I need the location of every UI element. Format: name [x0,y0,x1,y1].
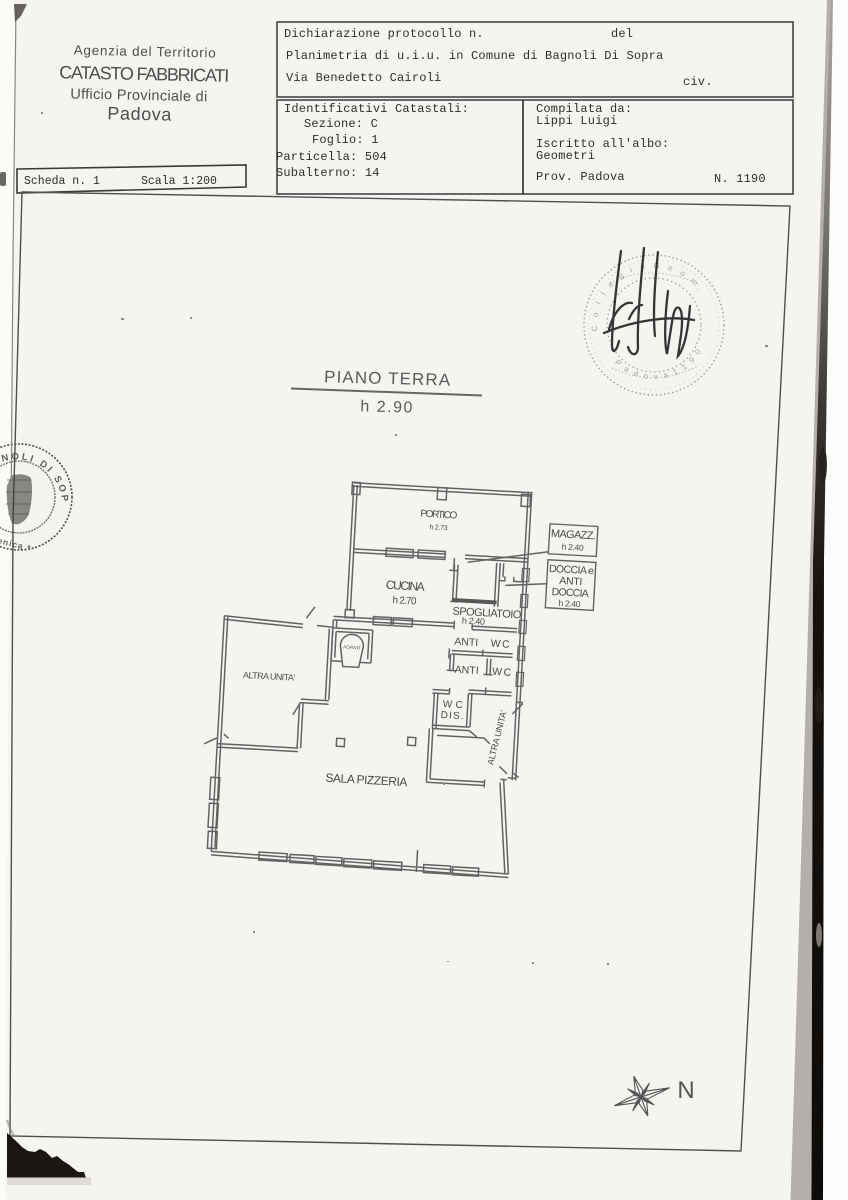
svg-text:PORTICO: PORTICO [420,509,459,522]
svg-text:N: N [677,1077,694,1104]
svg-text:MAGAZZ.: MAGAZZ. [551,528,597,542]
svg-text:Scala 1:200: Scala 1:200 [141,175,217,188]
svg-text:ANTI: ANTI [454,636,479,649]
svg-text:Prov. Padova: Prov. Padova [536,170,625,184]
svg-text:Agenzia del Territorio: Agenzia del Territorio [74,43,216,61]
svg-text:Particella: 504: Particella: 504 [276,150,387,164]
svg-text:CUCINA: CUCINA [385,578,425,594]
svg-text:N. 1190: N. 1190 [714,172,766,186]
svg-text:Planimetria di u.i.u. in Comun: Planimetria di u.i.u. in Comune di Bagno… [286,49,663,63]
svg-text:h 2.73: h 2.73 [429,524,447,532]
svg-text:Lippi Luigi: Lippi Luigi [536,114,617,128]
svg-text:h 2.40: h 2.40 [558,598,581,609]
svg-text:h 2.40: h 2.40 [462,616,486,627]
svg-text:FORNO: FORNO [343,644,361,650]
svg-text:ANTI: ANTI [454,664,479,677]
svg-text:Padova: Padova [107,103,172,124]
svg-text:Sezione: C: Sezione: C [304,117,378,131]
svg-text:Dichiarazione protocollo n.: Dichiarazione protocollo n. [284,27,484,41]
svg-text:Foglio: 1: Foglio: 1 [312,133,379,147]
svg-text:Identificativi Catastali:: Identificativi Catastali: [284,102,469,116]
svg-text:PIANO TERRA: PIANO TERRA [324,367,452,389]
svg-text:h 2.40: h 2.40 [561,542,584,553]
svg-text:h 2.90: h 2.90 [360,398,413,416]
svg-text:civ.: civ. [683,75,713,89]
svg-text:Via Benedetto Cairoli: Via Benedetto Cairoli [286,71,441,85]
svg-text:del: del [611,27,633,41]
svg-text:Geometri: Geometri [536,149,595,163]
svg-text:h 2.70: h 2.70 [392,595,417,607]
svg-text:Subalterno: 14: Subalterno: 14 [276,166,380,180]
svg-text:Ufficio Provinciale di: Ufficio Provinciale di [70,86,207,105]
svg-text:CATASTO FABBRICATI: CATASTO FABBRICATI [59,62,229,86]
svg-text:Scheda n. 1: Scheda n. 1 [24,175,100,188]
